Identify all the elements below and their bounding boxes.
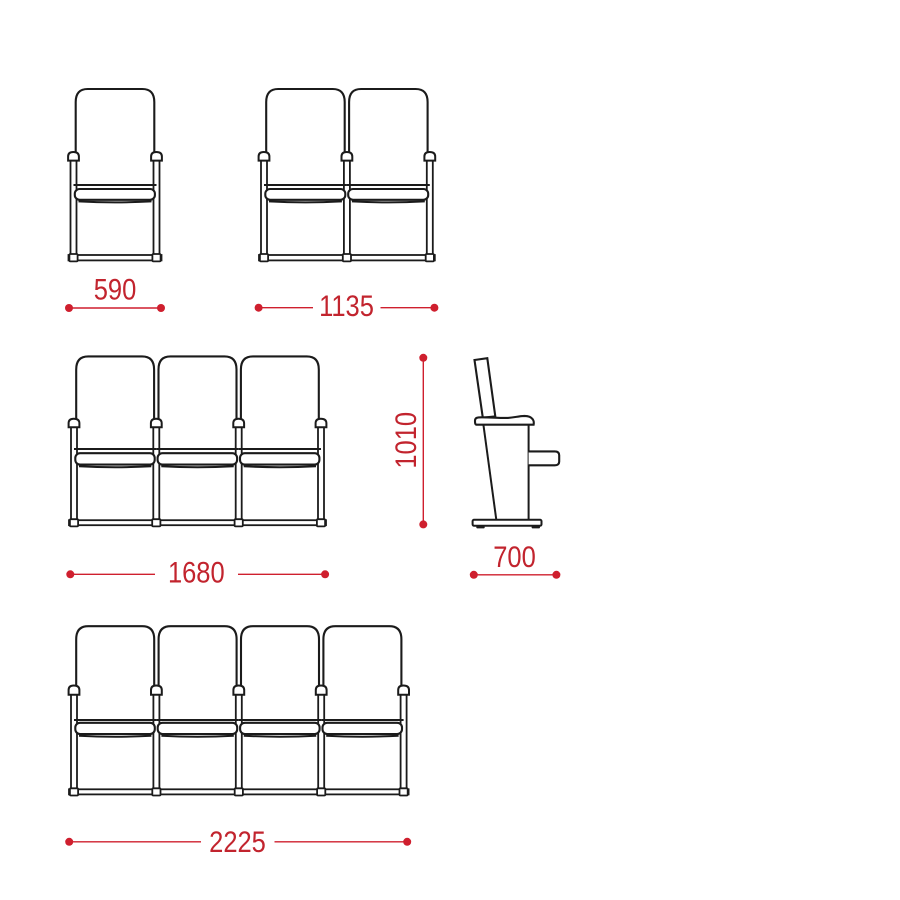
svg-text:590: 590 [94,273,137,306]
svg-text:1010: 1010 [389,412,422,469]
svg-text:700: 700 [493,540,536,573]
svg-text:1135: 1135 [319,289,374,322]
svg-text:2225: 2225 [209,825,266,858]
svg-text:1680: 1680 [168,556,225,589]
